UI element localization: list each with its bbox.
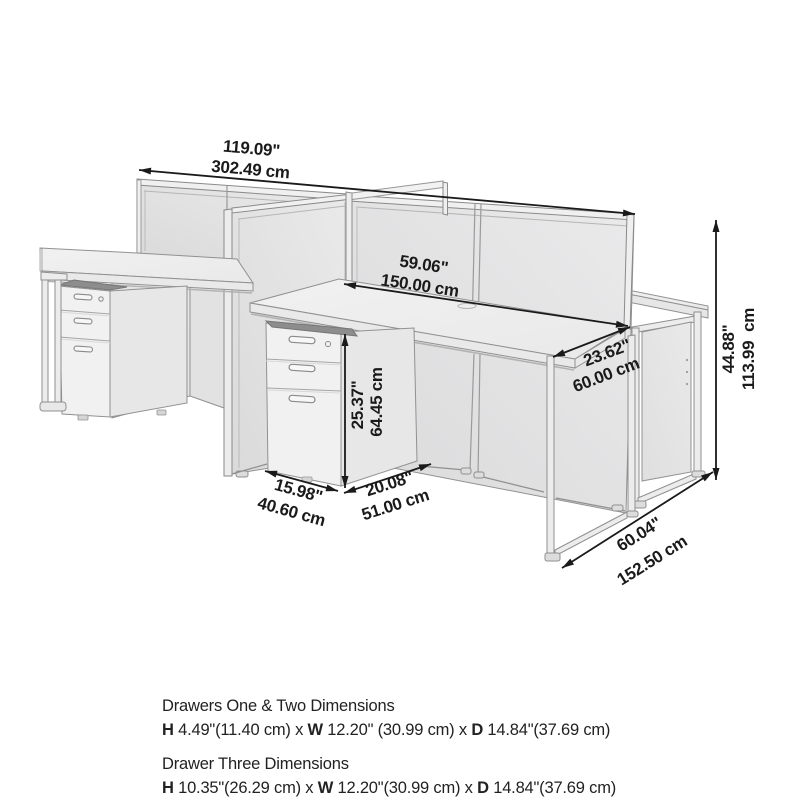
svg-text:Drawers One & Two Dimensions: Drawers One & Two Dimensions bbox=[162, 697, 395, 715]
svg-text:64.45 cm: 64.45 cm bbox=[367, 367, 386, 437]
svg-text:Drawer Three Dimensions: Drawer Three Dimensions bbox=[162, 755, 349, 773]
svg-text:119.09": 119.09" bbox=[222, 137, 280, 161]
svg-text:H 4.49"(11.40 cm) x W 12.20" (: H 4.49"(11.40 cm) x W 12.20" (30.99 cm) … bbox=[162, 721, 610, 739]
svg-text:44.88": 44.88" bbox=[719, 325, 738, 374]
svg-text:302.49 cm: 302.49 cm bbox=[211, 157, 291, 183]
svg-text:25.37": 25.37" bbox=[348, 381, 367, 430]
svg-text:H 10.35"(26.29 cm) x W 12.20"(: H 10.35"(26.29 cm) x W 12.20"(30.99 cm) … bbox=[162, 779, 616, 797]
svg-text:113.99 cm: 113.99 cm bbox=[739, 308, 758, 390]
